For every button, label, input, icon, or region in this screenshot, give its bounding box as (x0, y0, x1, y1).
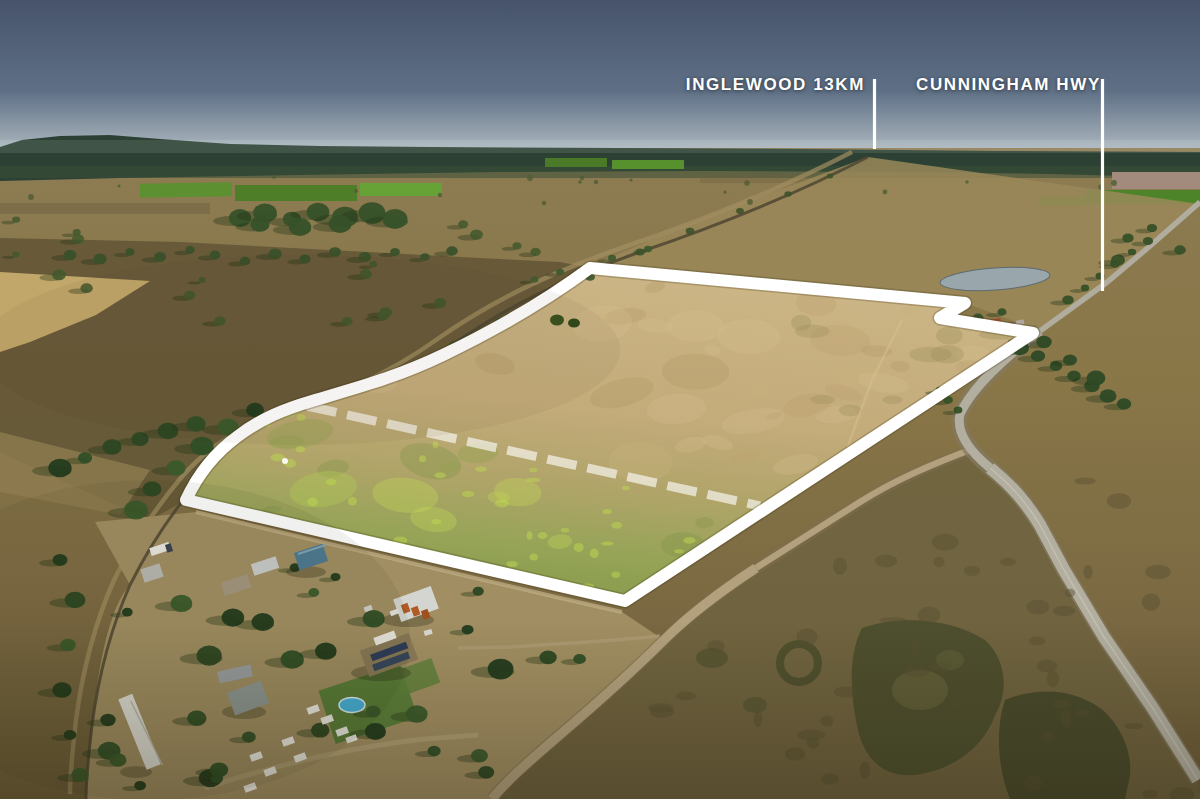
scene (0, 0, 1200, 799)
horizon-forest-inner (0, 166, 1200, 178)
vignette (0, 620, 1200, 799)
water-tank-dot (282, 458, 288, 464)
shading (0, 255, 620, 445)
cunningham-label: CUNNINGHAM HWY (916, 75, 1101, 95)
pink-field (1112, 172, 1200, 189)
inglewood-label: INGLEWOOD 13KM (686, 75, 865, 95)
horizon-haze (0, 140, 1200, 153)
aerial-property-photo: INGLEWOOD 13KM CUNNINGHAM HWY (0, 0, 1200, 799)
